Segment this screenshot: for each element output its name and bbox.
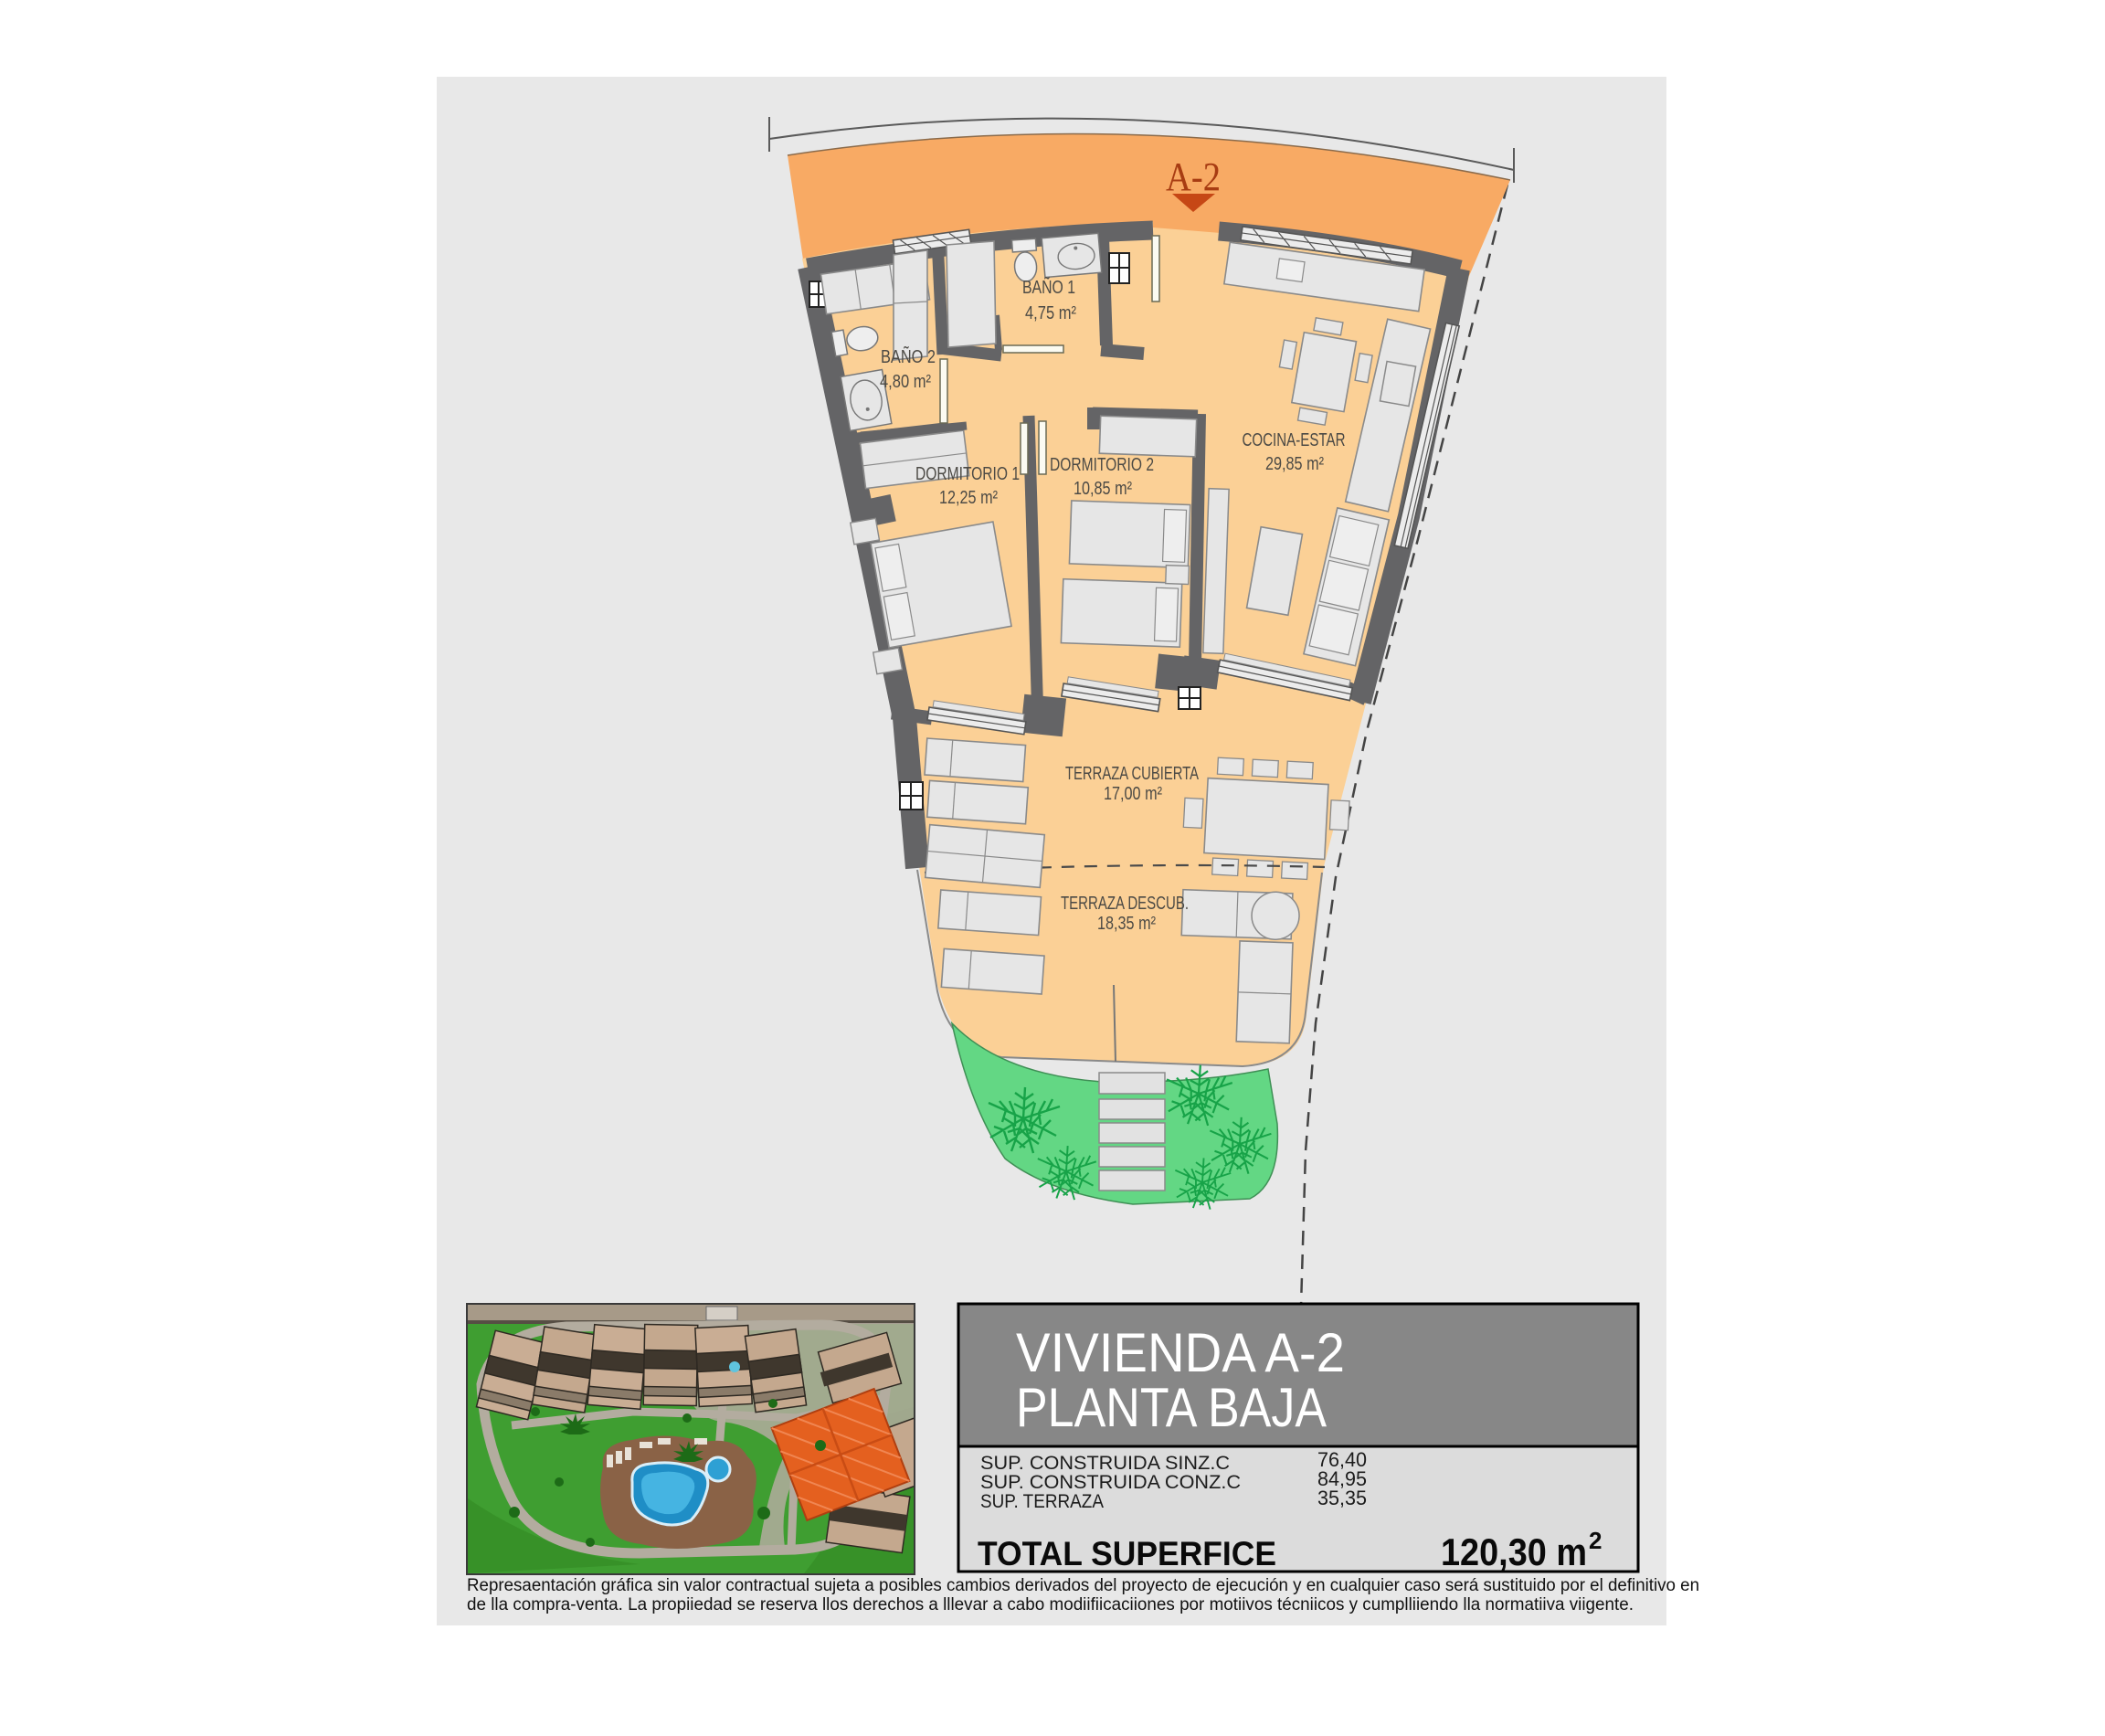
svg-text:SUP. CONSTRUIDA CONZ.C: SUP. CONSTRUIDA CONZ.C bbox=[980, 1472, 1241, 1493]
svg-text:PLANTA BAJA: PLANTA BAJA bbox=[1016, 1377, 1327, 1438]
svg-text:35,35: 35,35 bbox=[1317, 1487, 1367, 1509]
svg-text:17,00 m²: 17,00 m² bbox=[1104, 784, 1162, 804]
svg-text:SUP. TERRAZA: SUP. TERRAZA bbox=[980, 1491, 1104, 1512]
svg-text:VIVIENDA A-2: VIVIENDA A-2 bbox=[1016, 1322, 1345, 1383]
svg-text:Represaentación gráfica sin va: Represaentación gráfica sin valor contra… bbox=[467, 1576, 1699, 1595]
svg-text:DORMITORIO 1: DORMITORIO 1 bbox=[915, 464, 1020, 484]
svg-text:TERRAZA DESCUB.: TERRAZA DESCUB. bbox=[1061, 894, 1189, 914]
svg-text:10,85 m²: 10,85 m² bbox=[1074, 479, 1132, 499]
svg-text:de lla compra-venta. La propii: de lla compra-venta. La propiiedad se re… bbox=[467, 1595, 1634, 1614]
svg-text:4,75 m²: 4,75 m² bbox=[1025, 303, 1076, 323]
svg-text:SUP. CONSTRUIDA SINZ.C: SUP. CONSTRUIDA SINZ.C bbox=[980, 1453, 1230, 1474]
svg-text:BAÑO 2: BAÑO 2 bbox=[881, 345, 936, 367]
svg-text:18,35 m²: 18,35 m² bbox=[1097, 914, 1156, 934]
svg-text:TOTAL SUPERFICE: TOTAL SUPERFICE bbox=[978, 1535, 1276, 1572]
svg-text:12,25 m²: 12,25 m² bbox=[939, 488, 998, 508]
svg-text:2: 2 bbox=[1589, 1527, 1602, 1554]
svg-text:4,80 m²: 4,80 m² bbox=[880, 372, 931, 392]
svg-text:COCINA-ESTAR: COCINA-ESTAR bbox=[1243, 430, 1346, 450]
svg-text:BAÑO 1: BAÑO 1 bbox=[1022, 276, 1075, 298]
svg-text:DORMITORIO 2: DORMITORIO 2 bbox=[1050, 455, 1154, 475]
svg-text:29,85 m²: 29,85 m² bbox=[1265, 454, 1324, 474]
svg-text:120,30 m: 120,30 m bbox=[1441, 1530, 1587, 1573]
svg-text:A-2: A-2 bbox=[1166, 154, 1221, 199]
svg-text:TERRAZA CUBIERTA: TERRAZA CUBIERTA bbox=[1065, 764, 1199, 784]
